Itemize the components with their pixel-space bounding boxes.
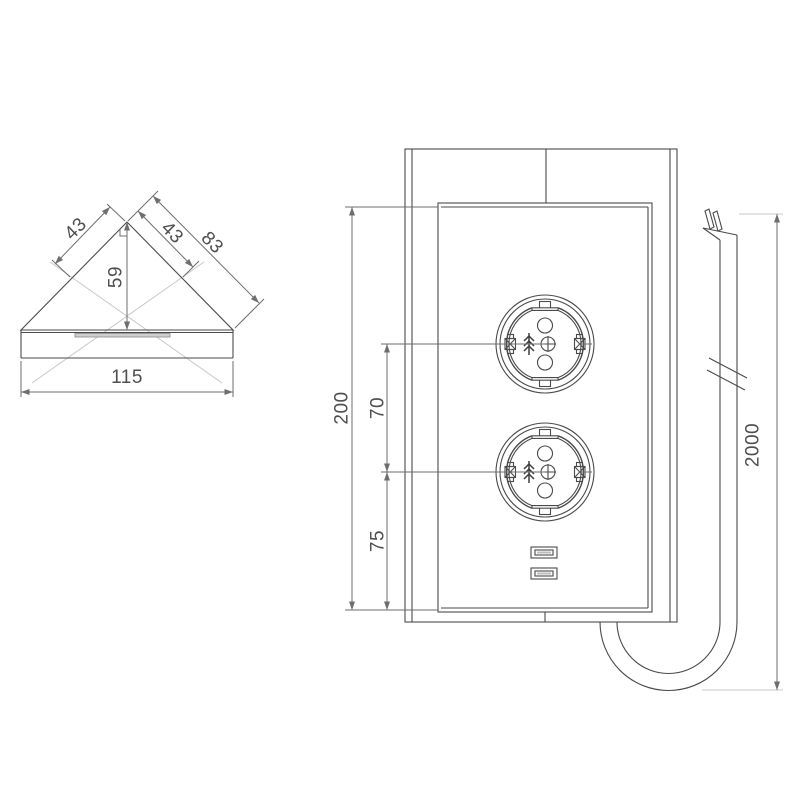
right-angle-mark	[120, 229, 127, 236]
dimension-2000: 2000	[702, 214, 783, 690]
dim-label-59: 59	[106, 266, 127, 288]
dim-label-43-right: 43	[157, 218, 188, 249]
usb-port-2	[531, 568, 557, 579]
dim-label-70: 70	[368, 397, 389, 419]
usb-tongue	[537, 573, 551, 575]
cable-end	[703, 209, 737, 240]
corner-top-view: 43 43 83 59 115	[21, 191, 264, 397]
dim-label-43-left: 43	[61, 214, 92, 245]
front-slot	[75, 334, 170, 338]
dimension-83: 83	[153, 196, 264, 328]
front-view: 200 70 75	[332, 149, 678, 622]
usb-tongue	[537, 552, 551, 554]
wire-tail-1	[705, 209, 714, 229]
wire-tail-2	[713, 211, 722, 231]
corner-front-band	[21, 330, 233, 358]
dim-label-75: 75	[368, 530, 389, 552]
dim-label-200: 200	[332, 391, 353, 424]
dim-label-2000: 2000	[743, 423, 764, 467]
drawing-canvas: 43 43 83 59 115	[0, 0, 800, 800]
dimension-115: 115	[21, 361, 233, 397]
usb-port-1	[531, 547, 557, 558]
power-cable: 2000	[600, 209, 783, 691]
technical-drawing: 43 43 83 59 115	[0, 0, 800, 800]
dim-label-83: 83	[197, 228, 228, 259]
dimension-70: 70	[368, 344, 546, 472]
dim-label-115: 115	[111, 367, 143, 388]
dimension-75: 75	[368, 472, 389, 610]
cable-break-mark	[707, 358, 747, 390]
